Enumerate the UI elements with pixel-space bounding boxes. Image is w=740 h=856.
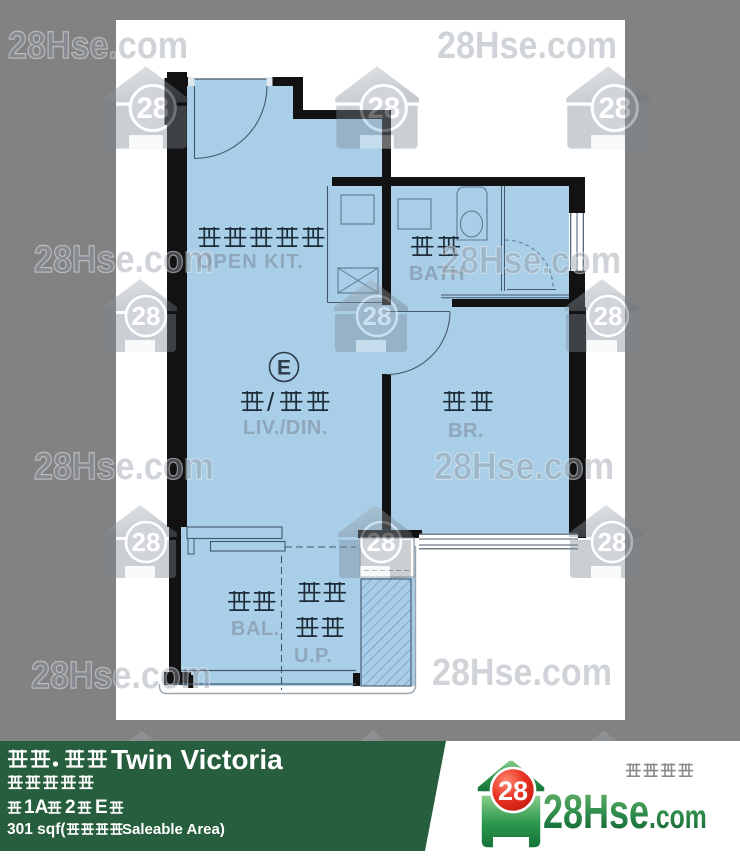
svg-text:LIV./DIN.: LIV./DIN. [243, 417, 328, 439]
svg-text:28Hse.com: 28Hse.com [432, 652, 612, 694]
svg-text:2: 2 [65, 797, 76, 818]
svg-text:28: 28 [363, 301, 392, 331]
svg-text:Twin Victoria: Twin Victoria [111, 744, 283, 775]
svg-text:28Hse.com: 28Hse.com [34, 446, 214, 488]
svg-text:BAL.: BAL. [231, 618, 280, 640]
svg-text:28Hse.com: 28Hse.com [34, 239, 214, 281]
svg-text:28Hse.com: 28Hse.com [441, 240, 621, 282]
svg-text:28: 28 [594, 301, 623, 331]
svg-text:28: 28 [498, 776, 528, 806]
svg-text:E: E [95, 797, 108, 818]
svg-text:28Hse.com: 28Hse.com [31, 655, 211, 697]
svg-text:28: 28 [132, 301, 161, 331]
svg-text:28: 28 [132, 527, 161, 557]
svg-text:/: / [267, 387, 275, 417]
svg-text:28Hse.com: 28Hse.com [8, 25, 188, 67]
svg-text:28: 28 [598, 92, 631, 125]
svg-text:28: 28 [367, 527, 396, 557]
svg-text:301 sqf(: 301 sqf( [7, 821, 66, 838]
svg-text:Saleable Area): Saleable Area) [122, 821, 225, 838]
svg-text:BR.: BR. [448, 420, 484, 442]
svg-text:28: 28 [367, 92, 400, 125]
svg-text:28: 28 [136, 92, 169, 125]
svg-text:28: 28 [598, 527, 627, 557]
svg-text:28Hse.com: 28Hse.com [437, 25, 617, 67]
svg-text:28Hse.com: 28Hse.com [434, 446, 614, 488]
svg-text:E: E [277, 357, 291, 380]
svg-text:U.P.: U.P. [294, 645, 332, 667]
svg-text:1A: 1A [24, 797, 49, 818]
